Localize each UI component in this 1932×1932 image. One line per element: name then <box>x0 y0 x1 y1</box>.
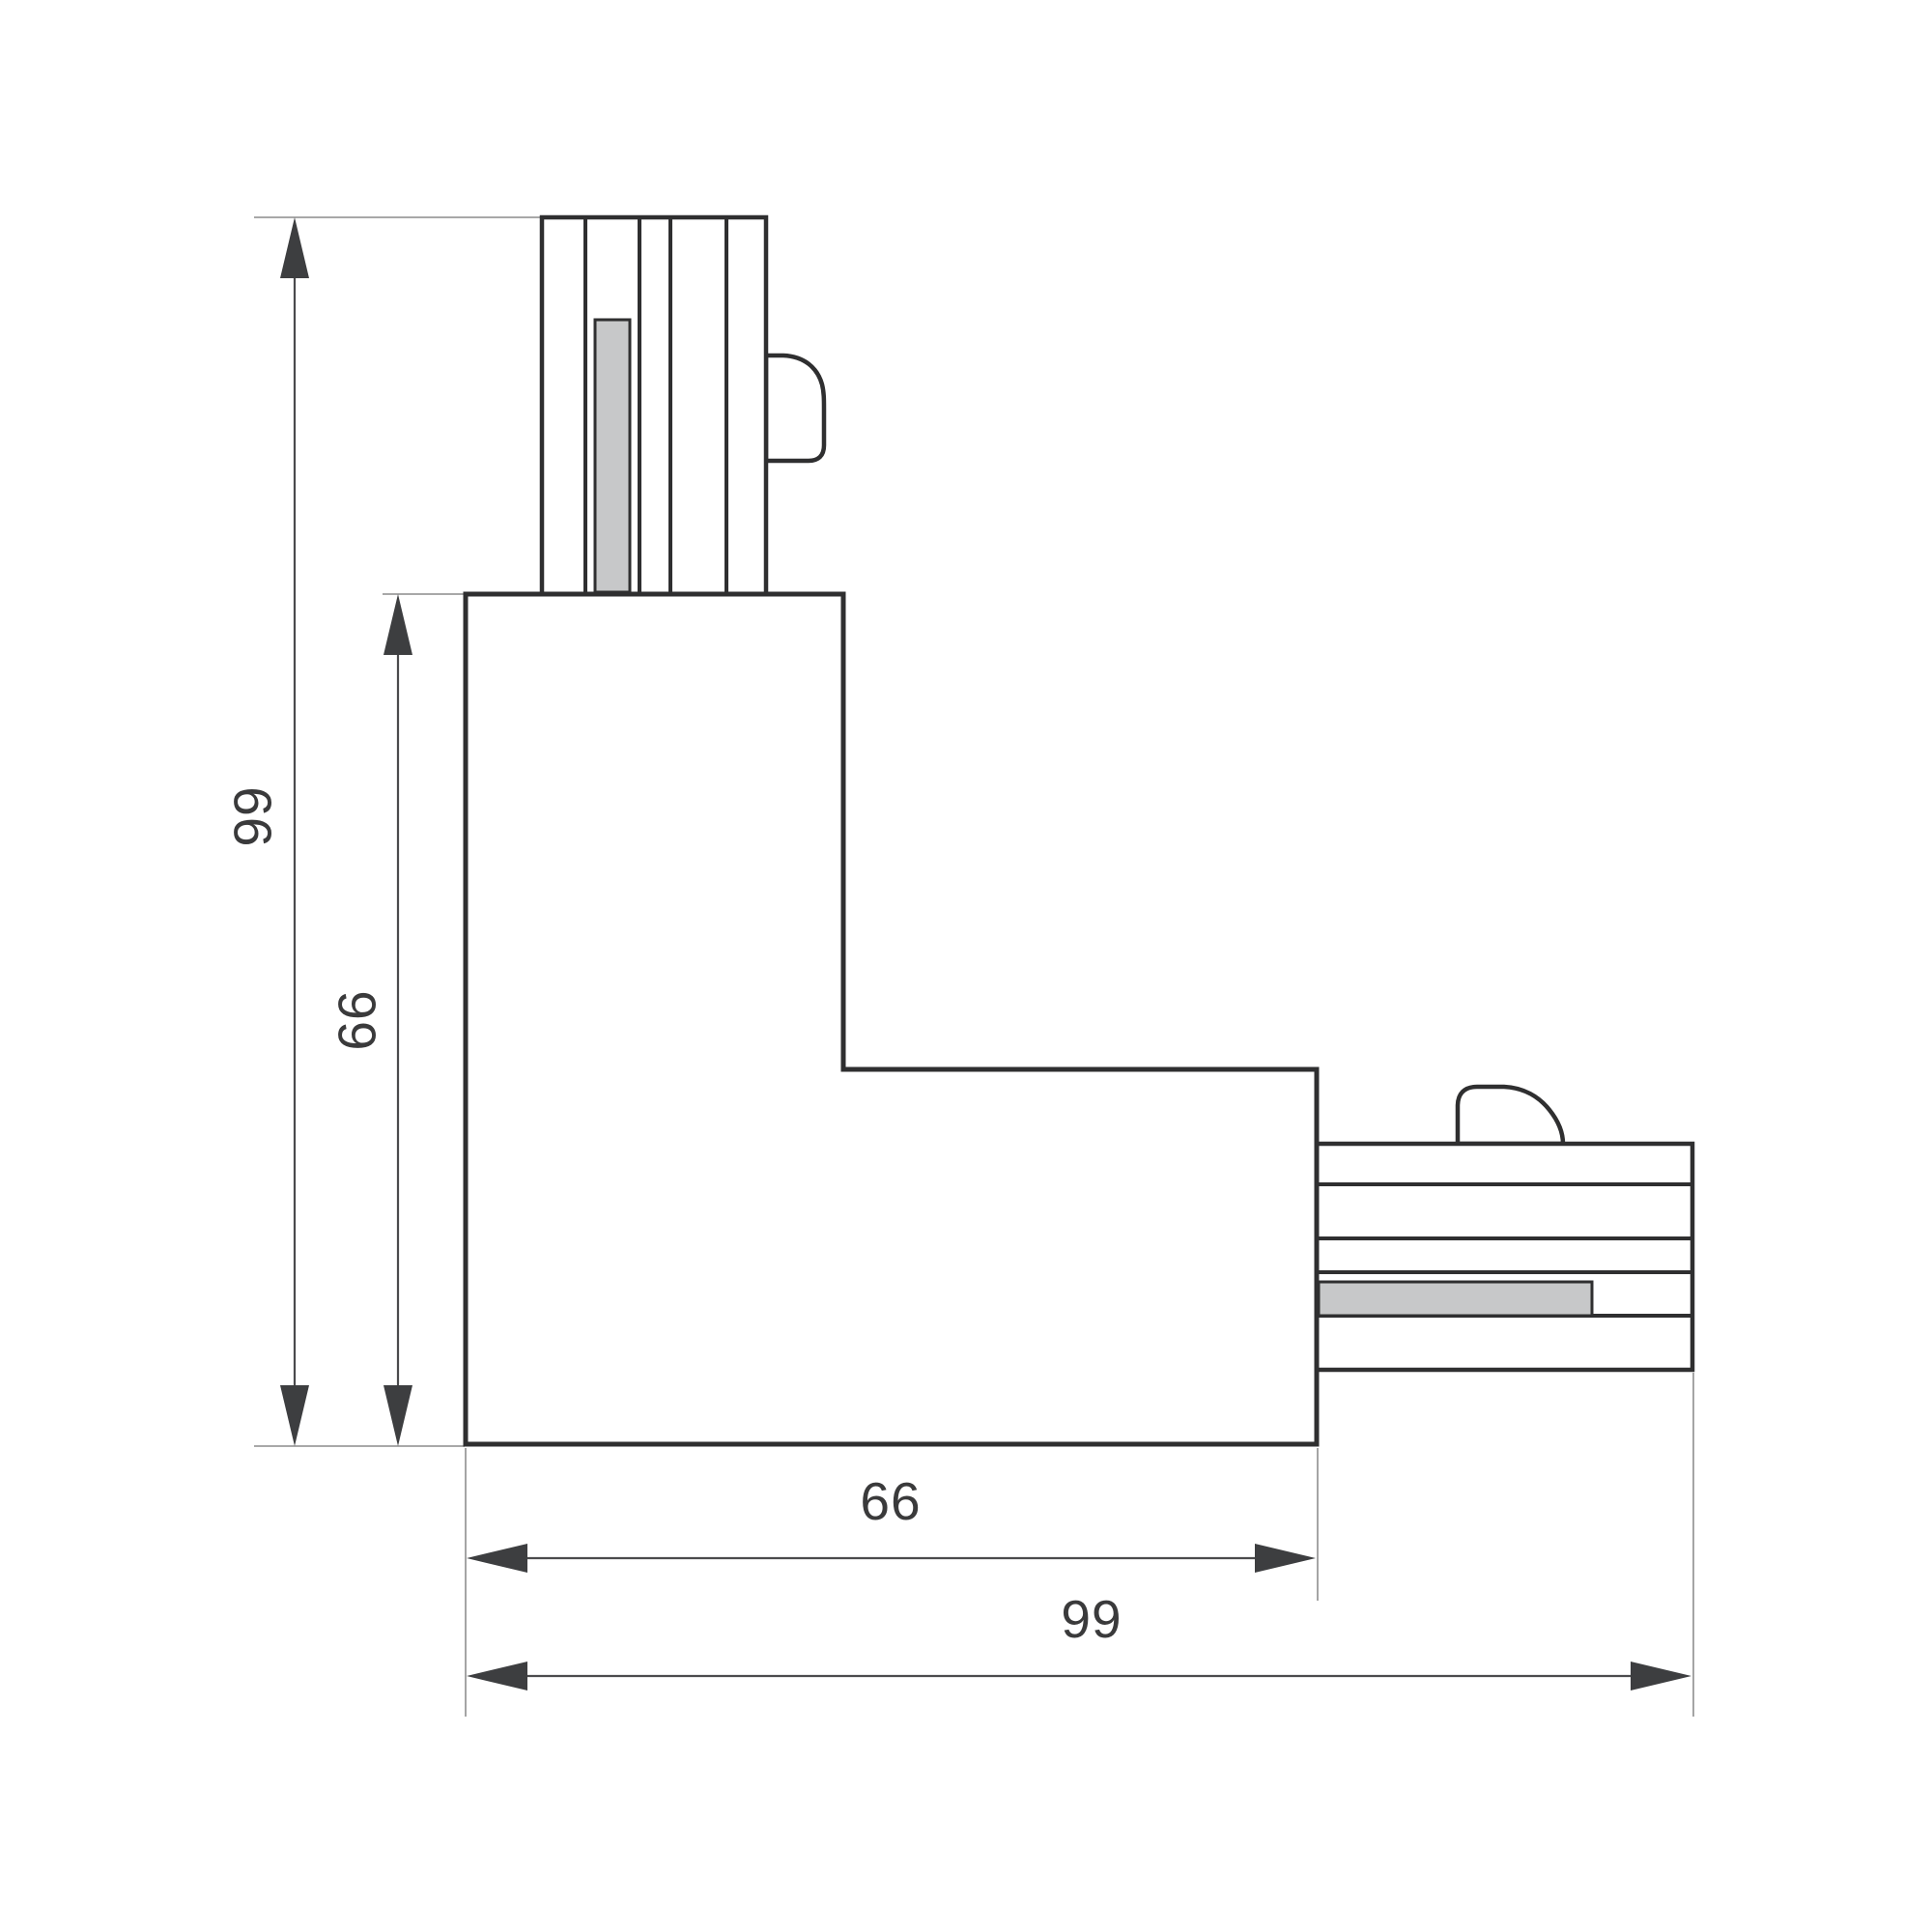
dimension-overall-height: 99 <box>222 217 309 1446</box>
drawing-canvas: 99 66 66 99 <box>0 0 1932 1932</box>
arrowhead-left-icon <box>467 1662 527 1690</box>
arrowhead-down-icon <box>384 1385 412 1446</box>
arrowhead-right-icon <box>1631 1662 1691 1690</box>
contact-bar <box>595 320 630 592</box>
top-plug <box>542 217 824 594</box>
latch-tab <box>1458 1087 1563 1144</box>
technical-drawing: 99 66 66 99 <box>0 0 1932 1932</box>
arrowhead-up-icon <box>384 594 412 655</box>
dimension-label: 99 <box>1061 1589 1122 1649</box>
arrowhead-right-icon <box>1255 1544 1316 1573</box>
arrowhead-down-icon <box>280 1385 309 1446</box>
right-plug <box>1317 1087 1692 1370</box>
l-connector-body <box>466 594 1317 1444</box>
plug-body <box>1317 1144 1692 1370</box>
dimension-body-width: 66 <box>467 1471 1316 1573</box>
dimension-label: 99 <box>222 785 282 846</box>
arrowhead-up-icon <box>280 217 309 278</box>
dimension-label: 66 <box>860 1471 921 1531</box>
dimension-overall-width: 99 <box>467 1589 1691 1690</box>
dimension-body-height: 66 <box>327 594 412 1446</box>
plug-body <box>542 217 766 594</box>
dimension-label: 66 <box>327 989 386 1050</box>
latch-tab <box>766 355 824 461</box>
contact-bar <box>1319 1282 1592 1316</box>
arrowhead-left-icon <box>467 1544 527 1573</box>
